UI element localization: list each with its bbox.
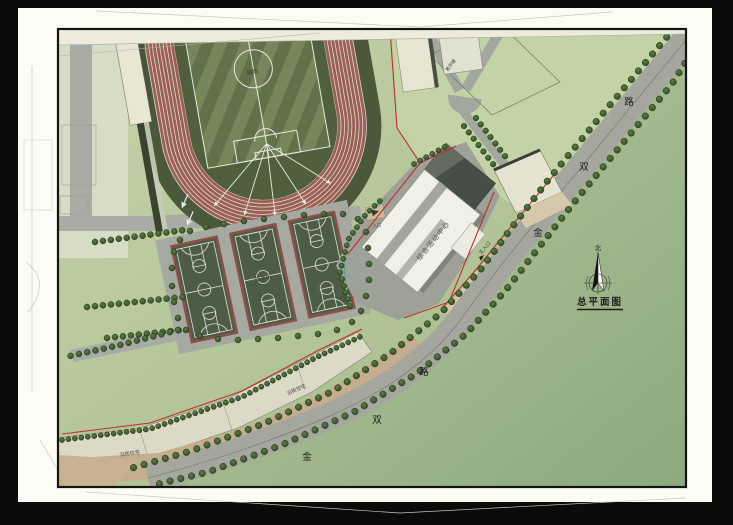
street-tree <box>240 456 247 463</box>
campus-tree <box>116 236 122 242</box>
street-tree <box>353 372 360 379</box>
road-char-lu-lower: 路 <box>419 366 429 378</box>
street-tree <box>635 121 642 128</box>
street-tree <box>614 93 621 100</box>
hedge-tree <box>137 428 142 433</box>
hedge-tree <box>186 413 191 418</box>
ne-path-tree <box>497 147 503 153</box>
hedge-tree <box>66 437 71 442</box>
street-tree <box>322 422 329 429</box>
plaza-tree <box>295 333 301 339</box>
campus-tree <box>164 296 170 302</box>
gym-hedge-tree <box>345 297 350 302</box>
street-tree <box>389 385 396 392</box>
plaza-tree <box>203 224 209 230</box>
hedge-tree <box>276 375 281 380</box>
gym-hedge-tree <box>350 230 355 235</box>
ne-path-tree <box>466 130 472 136</box>
campus-tree <box>179 227 185 233</box>
plaza-tree <box>321 211 327 217</box>
drawing-title-block: 总平面图 <box>577 296 623 310</box>
hedge-tree <box>299 363 304 368</box>
hedge-tree <box>205 406 210 411</box>
street-tree <box>220 463 227 470</box>
street-tree <box>504 230 511 237</box>
campus-tree <box>140 233 146 239</box>
street-tree <box>245 426 252 433</box>
street-tree <box>352 408 359 415</box>
campus-tree <box>180 294 186 300</box>
street-tree <box>497 293 504 300</box>
street-tree <box>621 85 628 92</box>
campus-tree <box>124 235 130 241</box>
road-char-shuang-lower: 双 <box>372 415 382 426</box>
gym-hedge-tree <box>340 277 345 282</box>
street-tree <box>302 431 309 438</box>
plaza-tree <box>340 211 346 217</box>
campus-tree <box>171 228 177 234</box>
street-tree <box>282 440 289 447</box>
campus-tree <box>101 346 107 352</box>
street-tree <box>162 455 169 462</box>
street-tree <box>551 169 558 176</box>
ne-path-tree <box>478 122 484 128</box>
hedge-tree <box>247 390 252 395</box>
campus-tree <box>142 336 148 342</box>
street-tree <box>600 110 607 117</box>
ne-path-tree <box>483 128 489 134</box>
street-tree <box>586 181 593 188</box>
plan-title: 总平面图 <box>577 296 623 308</box>
gym-hedge-tree <box>436 148 441 153</box>
street-tree <box>408 374 415 381</box>
hedge-tree <box>242 393 247 398</box>
gym-hedge-tree <box>424 155 429 160</box>
street-tree <box>498 239 505 246</box>
street-tree <box>475 317 482 324</box>
site-plan-drawing: 篮球场 综合活动中 <box>0 0 733 525</box>
street-tree <box>558 161 565 168</box>
plaza-tree <box>366 277 372 283</box>
gym-hedge-tree <box>339 263 344 268</box>
gym-hedge-tree <box>362 213 367 218</box>
hedge-tree <box>352 337 357 342</box>
street-tree <box>607 101 614 108</box>
gym-hedge-tree <box>338 270 343 275</box>
gym-hedge-tree <box>346 236 351 241</box>
street-tree <box>607 155 614 162</box>
street-tree <box>545 232 552 239</box>
hedge-tree <box>168 419 173 424</box>
hedge-tree <box>229 398 234 403</box>
ne-path-tree <box>502 153 508 159</box>
campus-tree <box>126 340 132 346</box>
campus-tree <box>100 302 106 308</box>
street-tree <box>538 241 545 248</box>
campus-tree <box>167 329 173 335</box>
street-tree <box>344 378 351 385</box>
street-tree <box>407 334 414 341</box>
street-tree <box>670 79 677 86</box>
plaza-tree <box>334 327 340 333</box>
plan-content: 篮球场 综合活动中 <box>58 0 714 487</box>
street-tree <box>251 452 258 459</box>
plaza-tree <box>215 336 221 342</box>
campus-tree <box>120 333 126 339</box>
street-tree <box>628 76 635 83</box>
street-tree <box>656 42 663 49</box>
plaza-tree <box>235 337 241 343</box>
street-tree <box>676 69 683 76</box>
gym-hedge-tree <box>341 256 346 261</box>
street-tree <box>572 144 579 151</box>
campus-tree <box>117 342 123 348</box>
hedge-tree <box>217 402 222 407</box>
hedge-tree <box>253 387 258 392</box>
street-tree <box>614 147 621 154</box>
street-tree <box>565 206 572 213</box>
campus-tree <box>108 302 114 308</box>
ne-path-tree <box>490 161 496 167</box>
street-tree <box>443 347 450 354</box>
ne-path-tree <box>476 142 482 148</box>
hedge-tree <box>236 396 241 401</box>
hedge-tree <box>287 369 292 374</box>
plaza-tree <box>187 228 193 234</box>
street-tree <box>151 458 158 465</box>
street-tree <box>398 341 405 348</box>
gym-hedge-tree <box>358 219 363 224</box>
gym-hedge-tree <box>342 250 347 255</box>
street-tree <box>265 418 272 425</box>
hedge-tree <box>282 372 287 377</box>
street-tree <box>511 276 518 283</box>
street-tree <box>642 59 649 66</box>
ne-path-tree <box>471 136 477 142</box>
street-tree <box>370 397 377 404</box>
street-tree <box>235 430 242 437</box>
campus-tree <box>116 301 122 307</box>
street-tree <box>362 366 369 373</box>
street-tree <box>261 448 268 455</box>
hedge-tree <box>328 348 333 353</box>
hedge-tree <box>340 343 345 348</box>
street-tree <box>470 274 477 281</box>
gym-hedge-tree <box>343 290 348 295</box>
gym-hedge-tree <box>377 198 382 203</box>
campus-tree <box>124 300 130 306</box>
hedge-tree <box>92 433 97 438</box>
street-tree <box>292 436 299 443</box>
street-tree <box>214 438 221 445</box>
street-tree <box>285 409 292 416</box>
plaza-tree <box>366 261 372 267</box>
hedge-tree <box>98 433 103 438</box>
hedge-tree <box>310 357 315 362</box>
plaza-tree <box>169 265 175 271</box>
street-tree <box>517 213 524 220</box>
street-tree <box>579 135 586 142</box>
hedge-tree <box>174 417 179 422</box>
plaza-tree <box>221 221 227 227</box>
ne-path-tree <box>485 155 491 161</box>
street-tree <box>325 390 332 397</box>
street-tree <box>642 113 649 120</box>
hedge-tree <box>150 426 155 431</box>
plaza-tree <box>197 333 203 339</box>
street-tree <box>635 68 642 75</box>
street-tree <box>167 478 174 485</box>
campus-tree <box>132 234 138 240</box>
campus-tree <box>109 344 115 350</box>
hedge-tree <box>180 415 185 420</box>
street-tree <box>390 348 397 355</box>
street-tree <box>525 258 532 265</box>
hedge-tree <box>305 360 310 365</box>
street-tree <box>342 413 349 420</box>
street-tree <box>478 266 485 273</box>
street-tree <box>204 442 211 449</box>
hedge-tree <box>59 437 64 442</box>
hedge-tree <box>105 432 110 437</box>
hedge-tree <box>270 378 275 383</box>
plaza-tree <box>349 319 355 325</box>
street-tree <box>484 257 491 264</box>
street-tree <box>572 198 579 205</box>
street-tree <box>451 340 458 347</box>
street-tree <box>649 104 656 111</box>
street-tree <box>194 446 201 453</box>
campus-tree <box>159 331 165 337</box>
street-tree <box>361 402 368 409</box>
plaza-tree <box>281 214 287 220</box>
street-tree <box>518 267 525 274</box>
street-tree <box>544 178 551 185</box>
street-tree <box>663 34 670 41</box>
street-tree <box>173 452 180 459</box>
hedge-tree <box>322 351 327 356</box>
hedge-tree <box>211 404 216 409</box>
campus-tree <box>150 333 156 339</box>
street-tree <box>593 118 600 125</box>
street-tree <box>537 187 544 194</box>
street-tree <box>460 333 467 340</box>
street-tree <box>593 172 600 179</box>
plaza-tree <box>169 283 175 289</box>
street-tree <box>482 309 489 316</box>
campus-tree <box>155 231 161 237</box>
street-tree <box>271 444 278 451</box>
hedge-tree <box>124 429 129 434</box>
street-tree <box>649 51 656 58</box>
gym-hedge-tree <box>372 203 377 208</box>
hedge-tree <box>111 431 116 436</box>
street-tree <box>335 385 342 392</box>
gym-hedge-tree <box>342 283 347 288</box>
plaza-tree <box>363 293 369 299</box>
campus-tree <box>132 299 138 305</box>
campus-tree <box>76 351 82 357</box>
campus-tree <box>104 335 110 341</box>
campus-tree <box>84 349 90 355</box>
campus-tree <box>140 298 146 304</box>
ne-path-tree <box>481 149 487 155</box>
street-tree <box>224 434 231 441</box>
north-label: 北 <box>595 244 602 252</box>
campus-tree <box>92 239 98 245</box>
plaza-tree <box>301 212 307 218</box>
street-tree <box>416 328 423 335</box>
street-tree <box>586 127 593 134</box>
campus-tree <box>148 297 154 303</box>
campus-tree <box>68 353 74 359</box>
street-tree <box>188 473 195 480</box>
plaza-tree <box>171 249 177 255</box>
street-tree <box>312 427 319 434</box>
plaza-tree <box>365 245 371 251</box>
street-tree <box>491 248 498 255</box>
road-char-lu-upper: 路 <box>624 96 634 108</box>
plaza-tree <box>358 308 364 314</box>
street-tree <box>456 290 463 297</box>
street-tree <box>178 475 185 482</box>
hedge-tree <box>79 435 84 440</box>
hedge-tree <box>143 427 148 432</box>
street-tree <box>434 354 441 361</box>
street-tree <box>448 298 455 305</box>
gym-hedge-tree <box>347 303 352 308</box>
gym-hedge-tree <box>430 151 435 156</box>
plaza-tree <box>275 335 281 341</box>
ne-path-tree <box>461 123 467 129</box>
street-tree <box>255 422 262 429</box>
ne-path-tree <box>473 115 479 121</box>
hedge-tree <box>346 340 351 345</box>
hedge-tree <box>334 345 339 350</box>
hedge-tree <box>259 384 264 389</box>
street-tree <box>332 417 339 424</box>
street-tree <box>600 164 607 171</box>
hedge-tree <box>265 381 270 386</box>
street-tree <box>275 413 282 420</box>
street-tree <box>381 354 388 361</box>
gym-hedge-tree <box>344 243 349 248</box>
street-tree <box>199 470 206 477</box>
street-tree <box>565 152 572 159</box>
plaza-tree <box>363 229 369 235</box>
street-tree <box>524 204 531 211</box>
road-char-jin-upper: 金 <box>533 227 543 239</box>
hedge-tree <box>85 434 90 439</box>
street-tree <box>209 467 216 474</box>
street-tree <box>441 306 448 313</box>
campus-tree <box>148 232 154 238</box>
plaza-tree <box>177 237 183 243</box>
ne-path-tree <box>493 141 499 147</box>
campus-tree <box>128 332 134 338</box>
hedge-tree <box>223 400 228 405</box>
street-tree <box>372 360 379 367</box>
campus-tree <box>136 332 142 338</box>
street-tree <box>490 301 497 308</box>
hedge-tree <box>130 429 135 434</box>
campus-tree <box>93 347 99 353</box>
street-tree <box>468 325 475 332</box>
street-tree <box>531 250 538 257</box>
street-tree <box>511 222 518 229</box>
street-tree <box>463 282 470 289</box>
hedge-tree <box>72 436 77 441</box>
street-tree <box>183 449 190 456</box>
street-tree <box>628 130 635 137</box>
street-tree <box>141 461 148 468</box>
gym-hedge-tree <box>411 161 416 166</box>
street-tree <box>663 87 670 94</box>
road-char-jin-lower: 金 <box>302 451 312 463</box>
campus-tree <box>134 338 140 344</box>
plaza-tree <box>315 331 321 337</box>
street-tree <box>504 284 511 291</box>
campus-tree <box>156 297 162 303</box>
street-tree <box>433 314 440 321</box>
plaza-tree <box>171 299 177 305</box>
street-tree <box>305 399 312 406</box>
street-tree <box>552 224 559 231</box>
plaza-tree <box>175 315 181 321</box>
gym-hedge-tree <box>418 158 423 163</box>
campus-tree <box>112 334 118 340</box>
street-tree <box>656 96 663 103</box>
hedge-tree <box>316 354 321 359</box>
plaza-tree <box>183 327 189 333</box>
gym-hedge-tree <box>442 144 447 149</box>
plaza-tree <box>255 336 261 342</box>
street-tree <box>295 404 302 411</box>
campus-tree <box>108 237 114 243</box>
street-tree <box>531 195 538 202</box>
gym-hedge-tree <box>354 225 359 230</box>
hedge-tree <box>162 421 167 426</box>
hedge-tree <box>117 430 122 435</box>
plaza-tree <box>241 218 247 224</box>
gym-hedge-tree <box>367 208 372 213</box>
campus-tree <box>175 327 181 333</box>
hedge-tree <box>156 424 161 429</box>
hedge-tree <box>193 411 198 416</box>
street-tree <box>424 321 431 328</box>
street-tree <box>380 391 387 398</box>
plaza-tree <box>261 216 267 222</box>
street-tree <box>315 395 322 402</box>
street-tree <box>579 189 586 196</box>
ne-path-tree <box>488 134 494 140</box>
campus-tree <box>100 238 106 244</box>
campus-tree <box>163 230 169 236</box>
campus-tree <box>84 304 90 310</box>
street-tree <box>621 138 628 145</box>
street-tree <box>230 459 237 466</box>
street-tree <box>558 215 565 222</box>
street-tree <box>399 379 406 386</box>
road-char-shuang-upper: 双 <box>579 162 589 173</box>
campus-tree <box>92 303 98 309</box>
street-tree <box>130 464 137 471</box>
hedge-tree <box>199 409 204 414</box>
hedge-tree <box>357 334 362 339</box>
hedge-tree <box>293 366 298 371</box>
